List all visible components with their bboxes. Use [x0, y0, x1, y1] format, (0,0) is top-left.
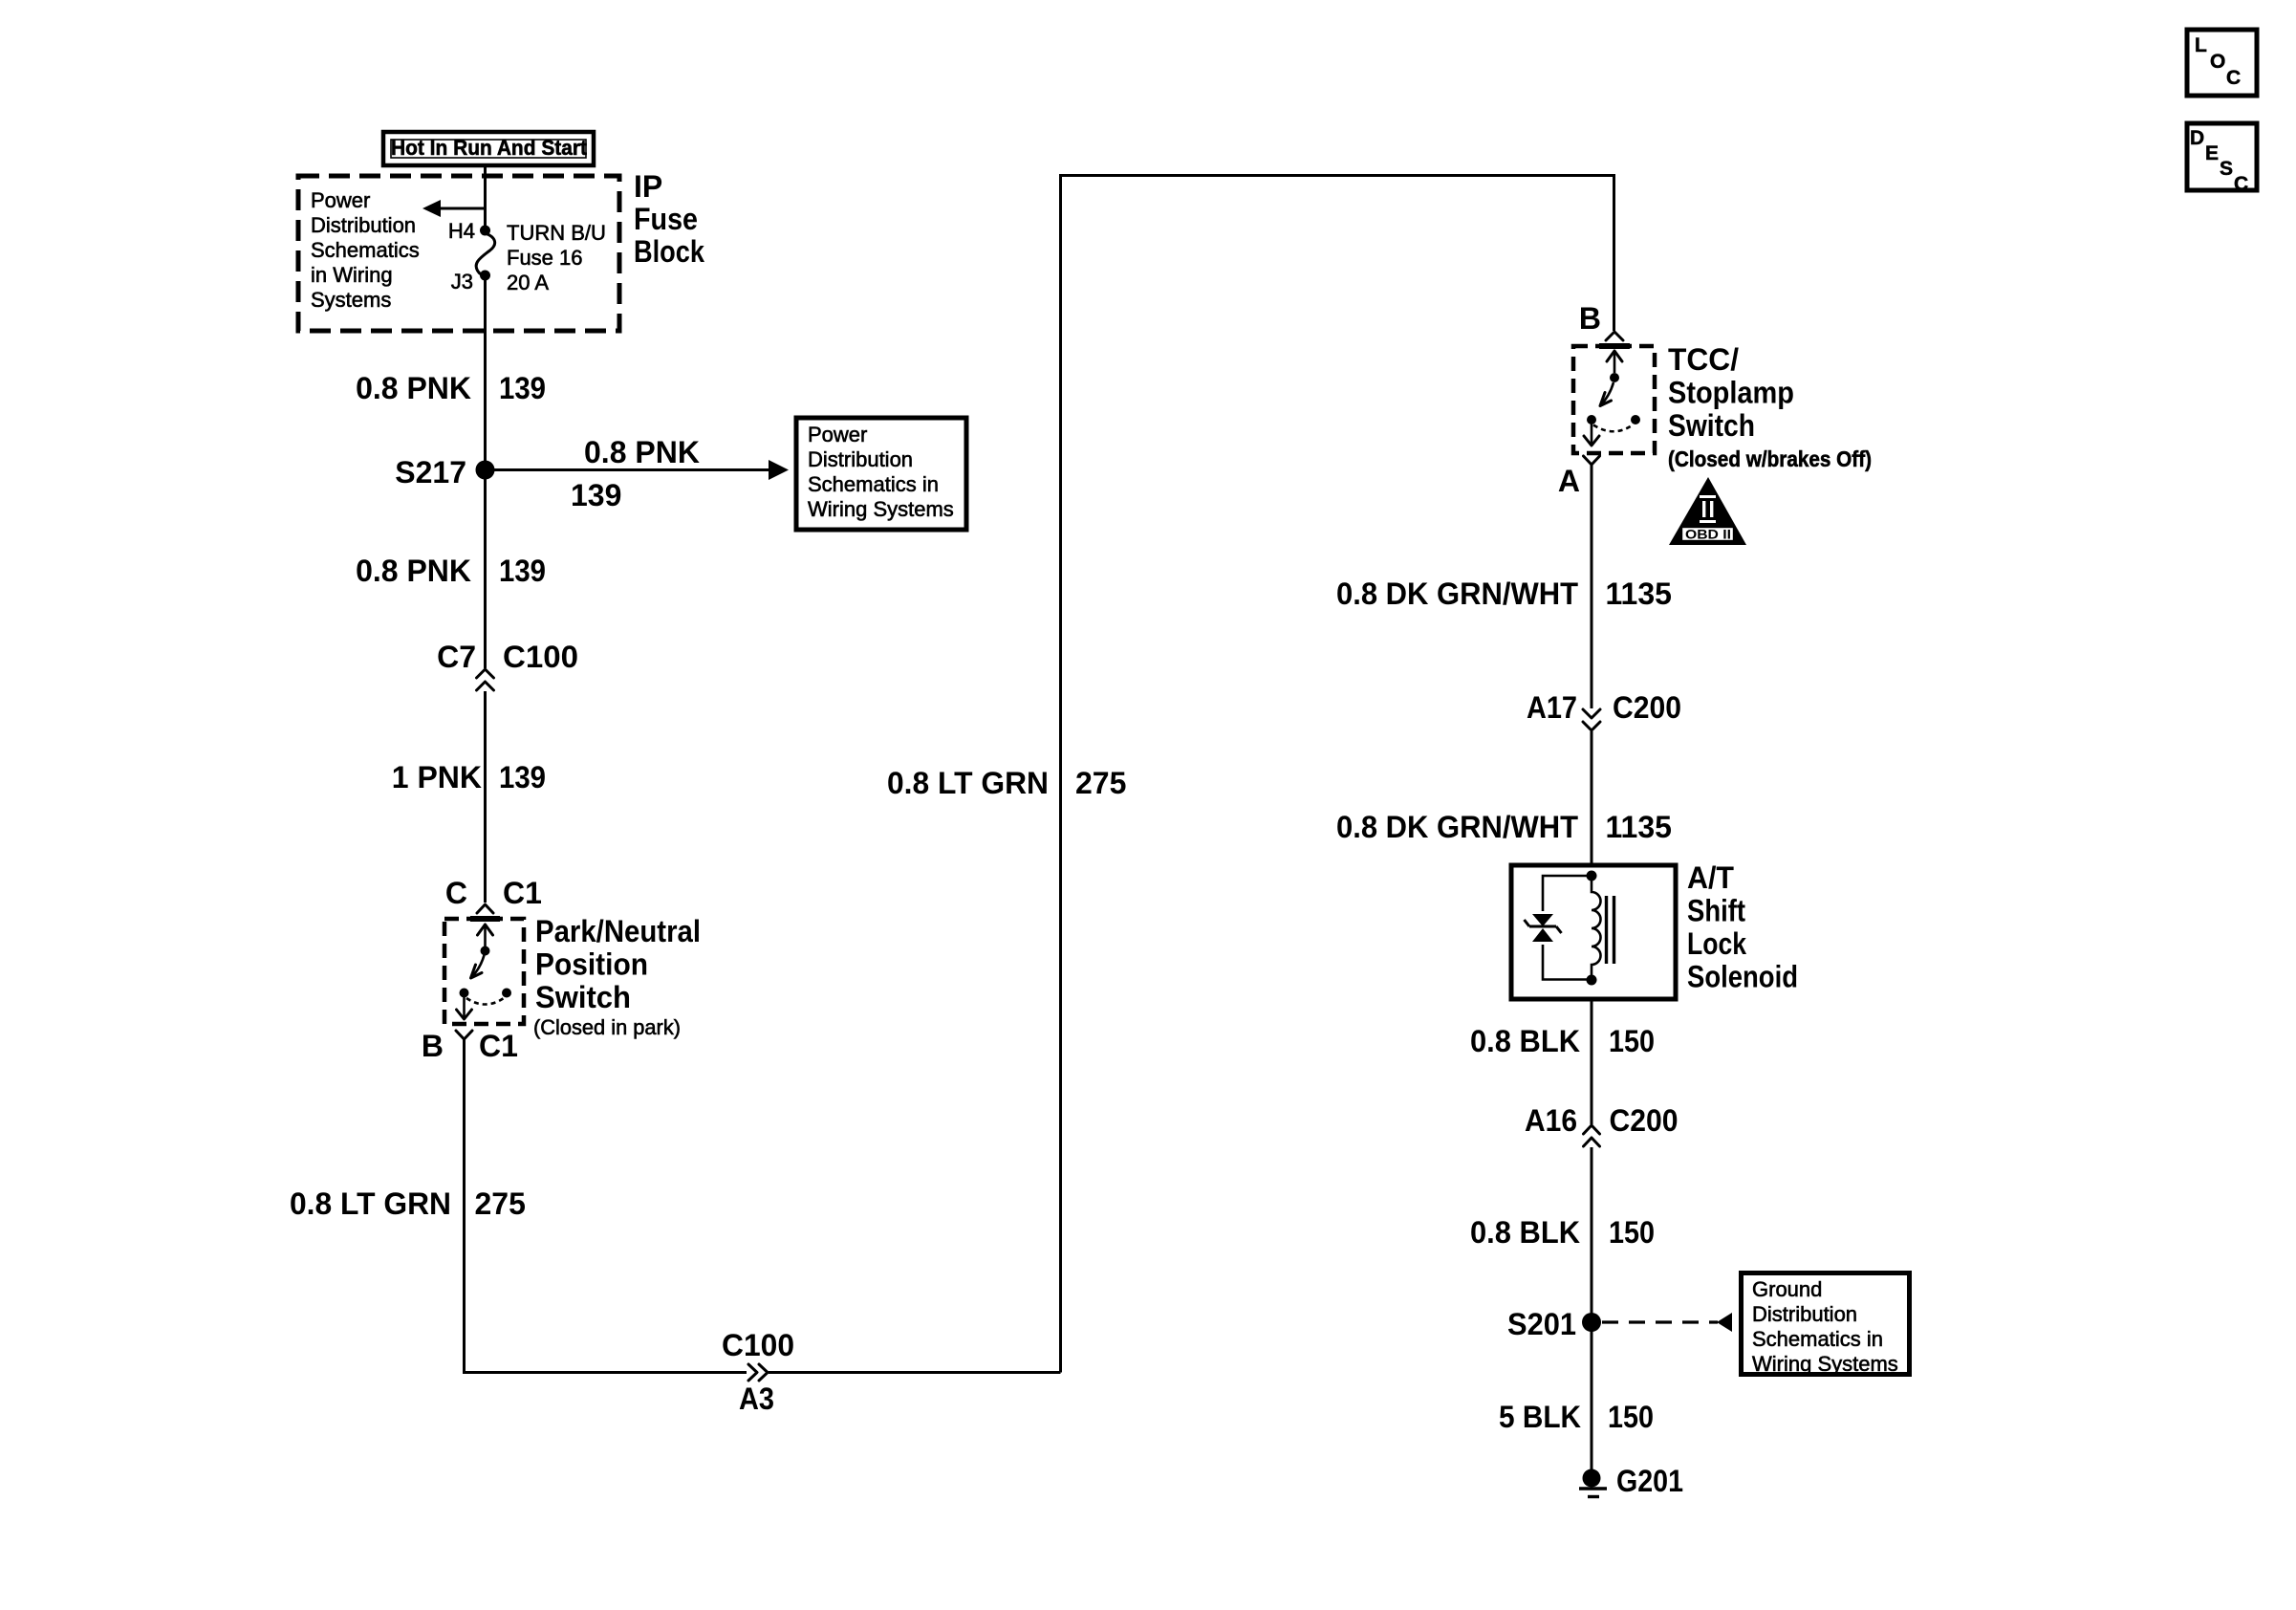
svg-text:0.8 LT GRN: 0.8 LT GRN — [290, 1186, 451, 1221]
svg-text:C: C — [2234, 173, 2248, 195]
svg-text:S217: S217 — [395, 455, 466, 490]
svg-text:B: B — [1579, 301, 1601, 336]
svg-text:Block: Block — [634, 234, 704, 269]
svg-text:L: L — [2195, 34, 2207, 56]
svg-text:Schematics: Schematics — [311, 238, 420, 262]
svg-text:D: D — [2190, 127, 2204, 149]
svg-text:Wiring Systems: Wiring Systems — [1752, 1352, 1898, 1376]
svg-text:0.8 DK GRN/WHT: 0.8 DK GRN/WHT — [1336, 577, 1578, 611]
svg-text:A: A — [1558, 464, 1580, 498]
svg-text:5 BLK: 5 BLK — [1499, 1400, 1581, 1434]
svg-text:0.8 DK GRN/WHT: 0.8 DK GRN/WHT — [1336, 810, 1578, 844]
svg-text:0.8 BLK: 0.8 BLK — [1470, 1215, 1580, 1250]
svg-text:Systems: Systems — [311, 288, 391, 312]
svg-text:TURN B/U: TURN B/U — [507, 221, 606, 245]
svg-text:H4: H4 — [448, 219, 475, 243]
svg-text:C1: C1 — [503, 876, 542, 910]
svg-text:A17: A17 — [1527, 690, 1577, 725]
svg-text:Distribution: Distribution — [1752, 1302, 1857, 1326]
svg-text:139: 139 — [499, 554, 546, 588]
svg-text:0.8 BLK: 0.8 BLK — [1470, 1024, 1580, 1058]
svg-text:Hot In Run And Start: Hot In Run And Start — [391, 136, 587, 160]
svg-text:A/T: A/T — [1687, 860, 1734, 895]
svg-text:Switch: Switch — [535, 980, 631, 1014]
svg-text:275: 275 — [1075, 766, 1126, 800]
svg-text:Power: Power — [311, 188, 370, 212]
svg-text:1135: 1135 — [1606, 810, 1672, 844]
svg-text:139: 139 — [499, 760, 546, 794]
svg-text:0.8 PNK: 0.8 PNK — [356, 554, 471, 588]
svg-text:Fuse: Fuse — [634, 202, 698, 236]
svg-text:0.8 PNK: 0.8 PNK — [356, 371, 471, 405]
svg-text:Distribution: Distribution — [311, 213, 416, 237]
svg-text:C: C — [445, 876, 467, 910]
svg-text:A16: A16 — [1525, 1103, 1577, 1138]
svg-text:0.8 LT GRN: 0.8 LT GRN — [887, 766, 1049, 800]
svg-text:275: 275 — [475, 1186, 526, 1221]
svg-text:Ground: Ground — [1752, 1277, 1822, 1301]
svg-text:Shift: Shift — [1687, 894, 1745, 928]
svg-text:150: 150 — [1609, 1215, 1655, 1250]
svg-text:TCC/: TCC/ — [1668, 342, 1739, 377]
svg-text:Switch: Switch — [1668, 408, 1755, 443]
svg-text:1 PNK: 1 PNK — [392, 760, 482, 794]
svg-text:Power: Power — [808, 423, 867, 446]
svg-text:Solenoid: Solenoid — [1687, 960, 1798, 994]
svg-text:(Closed w/brakes Off): (Closed w/brakes Off) — [1668, 446, 1872, 471]
svg-text:A3: A3 — [739, 1382, 774, 1416]
svg-text:Distribution: Distribution — [808, 447, 913, 471]
svg-text:(Closed in park): (Closed in park) — [533, 1015, 681, 1039]
svg-text:1135: 1135 — [1606, 577, 1672, 611]
svg-text:OBD II: OBD II — [1685, 528, 1731, 542]
svg-text:E: E — [2205, 142, 2219, 164]
svg-text:Wiring Systems: Wiring Systems — [808, 497, 954, 521]
svg-text:0.8 PNK: 0.8 PNK — [584, 435, 700, 469]
svg-text:C1: C1 — [479, 1029, 518, 1063]
svg-text:Fuse 16: Fuse 16 — [507, 246, 583, 270]
svg-text:J3: J3 — [451, 270, 473, 294]
svg-text:Stoplamp: Stoplamp — [1668, 376, 1794, 410]
svg-text:S: S — [2220, 158, 2233, 180]
svg-text:C100: C100 — [503, 640, 578, 674]
svg-text:150: 150 — [1609, 1024, 1655, 1058]
svg-text:C100: C100 — [722, 1328, 794, 1362]
svg-text:IP: IP — [634, 169, 662, 204]
svg-text:O: O — [2210, 51, 2225, 73]
svg-text:Lock: Lock — [1687, 926, 1746, 961]
svg-text:S201: S201 — [1507, 1307, 1576, 1341]
svg-text:20 A: 20 A — [507, 271, 549, 294]
svg-text:Schematics in: Schematics in — [1752, 1327, 1883, 1351]
svg-text:C200: C200 — [1613, 690, 1681, 725]
svg-text:C: C — [2226, 67, 2241, 89]
svg-text:G201: G201 — [1616, 1464, 1683, 1498]
svg-text:Park/Neutral: Park/Neutral — [535, 914, 701, 948]
svg-text:C7: C7 — [437, 640, 476, 674]
svg-text:B: B — [422, 1029, 444, 1063]
svg-text:Position: Position — [535, 947, 648, 982]
svg-text:139: 139 — [499, 371, 546, 405]
svg-text:139: 139 — [571, 478, 621, 512]
svg-text:C200: C200 — [1610, 1103, 1679, 1138]
svg-text:in Wiring: in Wiring — [311, 263, 393, 287]
svg-text:150: 150 — [1608, 1400, 1654, 1434]
svg-text:Schematics in: Schematics in — [808, 472, 939, 496]
